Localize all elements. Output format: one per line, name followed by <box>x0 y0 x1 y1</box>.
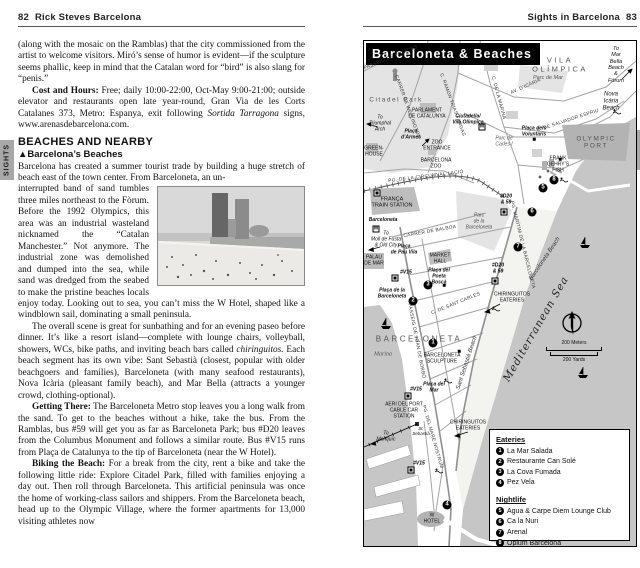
paragraph-beaches-wrap: interrupted band of sand tumbles three m… <box>18 184 305 321</box>
sights-tab-left: SIGHTS <box>0 140 14 180</box>
legend-label: Pez Vela <box>507 479 535 486</box>
map-label-to-montjuic: To Montjuïc <box>377 431 396 443</box>
map-label-parc-barceloneta: Parc de la Barceloneta <box>466 213 493 230</box>
legend-label: La Cova Fumada <box>507 469 561 476</box>
metro-icon: M <box>373 226 380 233</box>
left-page-header: 82Rick Steves Barcelona <box>18 12 305 23</box>
section-heading: BEACHES AND NEARBY <box>18 137 305 148</box>
bus-icon <box>408 467 415 474</box>
poi-dot <box>443 284 446 287</box>
paragraph-biking: Biking the Beach: For a break from the c… <box>18 459 305 528</box>
bus-icon <box>392 275 399 282</box>
legend-label: Agua & Carpe Diem Lounge Club <box>507 508 611 515</box>
legend-label: Restaurante Can Solé <box>507 458 576 465</box>
map-marker-7: 7 <box>514 243 523 252</box>
map-scale: 200 Meters 200 Yards <box>546 340 602 363</box>
map-marker-1: 1 <box>429 339 438 348</box>
map-label-nova-icaria: Nova Icària Beach <box>602 92 619 113</box>
legend-marker: 1 <box>496 447 504 455</box>
running-head: Rick Steves Barcelona <box>35 12 141 23</box>
legend-item: 1La Mar Salada <box>496 447 623 455</box>
page-number: 83 <box>626 12 637 23</box>
subsection-heading: ▲Barcelona’s Beaches <box>18 149 305 160</box>
map-marker-6: 6 <box>528 208 537 217</box>
legend-marker: 3 <box>496 468 504 476</box>
poi-dot <box>458 350 461 353</box>
legend-item: 4Pez Vela <box>496 479 623 487</box>
bus-route-label: #V15 <box>410 387 422 393</box>
map-label-to-mar-bella: To Mar Bella Beach & Fòrum <box>606 46 626 84</box>
legend-label: Arenal <box>507 529 527 536</box>
right-page-header: Sights in Barcelona83 <box>363 12 637 23</box>
book-spread: 82Rick Steves Barcelona Sights in Barcel… <box>0 0 640 568</box>
map-label-zoo-entrance: ZOO ENTRANCE <box>423 140 451 152</box>
paragraph-text: For a break from the city, rent a bike a… <box>18 459 305 526</box>
scale-bar <box>546 347 602 351</box>
paragraph-scene: The overall scene is great for sunbathin… <box>18 322 305 402</box>
map-marker-3: 3 <box>424 281 433 290</box>
map-legend: Eateries 1La Mar Salada 2Restaurante Can… <box>489 429 630 541</box>
map-label-greenhouse: GREEN- HOUSE <box>364 146 383 158</box>
page-number: 82 <box>18 12 29 23</box>
bus-icon <box>405 393 412 400</box>
map-marker-5: 5 <box>539 184 548 193</box>
map-label-chiringuitos-2: CHIRINGUITOS EATERIES <box>450 420 486 432</box>
italic-text: chiringuitos. <box>236 345 283 355</box>
scale-yards: 200 Yards <box>546 357 602 363</box>
legend-nightlife-title: Nightlife <box>496 495 623 504</box>
legend-item: 6Ca la Nuri <box>496 518 623 526</box>
beach-photo <box>157 186 305 286</box>
bus-route-label: #V15 <box>400 270 412 276</box>
map-label-market-hall: MARKET HALL <box>430 253 451 265</box>
paragraph-getting-there: Getting There: The Barceloneta Metro sto… <box>18 402 305 459</box>
legend-item: 3La Cova Fumada <box>496 468 623 476</box>
italic-text: Sortida Tarragona <box>207 109 278 119</box>
map-marker-4: 4 <box>443 501 452 510</box>
paragraph-intro: (along with the mosaic on the Ramblas) t… <box>18 40 305 86</box>
bus-route-label: #V15 <box>413 461 425 467</box>
map-label-barceloneta-district: BARCELONETA <box>376 334 462 343</box>
legend-item: 2Restaurante Can Solé <box>496 458 623 466</box>
map-label-palau-de-mar: PALAU DE MAR <box>364 255 383 267</box>
poi-dot <box>559 158 562 161</box>
legend-label: Opium Barcelona <box>507 540 561 547</box>
map-label-barcelona-zoo: BARCELONA ZOO <box>421 158 452 170</box>
left-page-body: (along with the mosaic on the Ramblas) t… <box>18 40 305 528</box>
biking-label: Biking the Beach: <box>32 459 105 469</box>
poi-dot <box>533 138 536 141</box>
cost-hours-label: Cost and Hours: <box>32 86 99 96</box>
bus-route-label: #D20 & 59 <box>500 195 512 206</box>
header-rule <box>363 26 637 27</box>
barceloneta-map: Barceloneta & Beaches VILA OLÍMPICA To M… <box>363 40 637 547</box>
metro-icon: M <box>479 124 486 131</box>
map-label-citadel-park: Citadel Park <box>369 96 422 103</box>
map-label-franca-station: FRANÇA TRAIN STATION <box>371 197 412 210</box>
map-label-placa-barceloneta: Plaça de la Barceloneta <box>378 288 407 300</box>
map-label-aeri: AERI DEL PORT CABLE CAR STATION <box>385 402 423 419</box>
map-label-pau-vila: Plaça de Pau Vila <box>391 244 418 256</box>
map-label-sculpture: BARCELONETA SCULPTURE <box>424 353 461 365</box>
paragraph-cost-hours: Cost and Hours: Free; daily 10:00-22:00,… <box>18 86 305 132</box>
legend-item: 7Arenal <box>496 529 623 537</box>
legend-marker: 2 <box>496 458 504 466</box>
legend-marker: 8 <box>496 539 504 547</box>
legend-item: 8Opium Barcelona <box>496 539 623 547</box>
map-label-chiringuitos-1: CHIRINGUITOS EATERIES <box>494 292 530 304</box>
paragraph-beaches-start: Barcelona has created a summer tourist t… <box>18 162 305 185</box>
legend-item: 5Agua & Carpe Diem Lounge Club <box>496 507 623 515</box>
running-head: Sights in Barcelona <box>528 12 621 23</box>
paragraph-text: (along with the mosaic on the Ramblas) t… <box>18 40 305 84</box>
legend-eateries-title: Eateries <box>496 435 623 444</box>
getting-there-label: Getting There: <box>32 402 91 412</box>
legend-marker: 7 <box>496 529 504 537</box>
legend-marker: 5 <box>496 507 504 515</box>
map-marker-2: 2 <box>409 297 418 306</box>
scale-bar <box>550 352 598 356</box>
bus-icon <box>501 209 508 216</box>
map-label-placa-mar: Plaça del Mar <box>423 382 445 394</box>
map-label-vila-olimpica: VILA OLÍMPICA <box>532 56 588 73</box>
bus-icon <box>492 278 499 285</box>
map-label-marina: Marina <box>374 352 392 359</box>
header-rule <box>18 26 305 27</box>
legend-marker: 6 <box>496 518 504 526</box>
scale-meters: 200 Meters <box>546 340 602 346</box>
beach-photo-image <box>158 187 304 285</box>
legend-marker: 4 <box>496 479 504 487</box>
map-label-to-triumphal-arch: To Triumphal Arch <box>369 115 391 132</box>
map-label-parc-carles: Parc de Carles I <box>495 136 512 148</box>
bus-route-label: #D20 & 59 <box>492 264 504 275</box>
paragraph-text: Barcelona has created a summer tourist t… <box>18 162 305 183</box>
map-label-olympic-port: OLYMPIC PORT <box>576 136 615 151</box>
map-label-w-hotel: W HOTEL <box>424 513 441 525</box>
legend-label: Ca la Nuri <box>507 518 538 525</box>
map-label-barceloneta-metro: Barceloneta <box>369 218 398 224</box>
map-marker-8: 8 <box>550 176 559 185</box>
legend-label: La Mar Salada <box>507 448 553 455</box>
train-icon <box>374 190 381 197</box>
